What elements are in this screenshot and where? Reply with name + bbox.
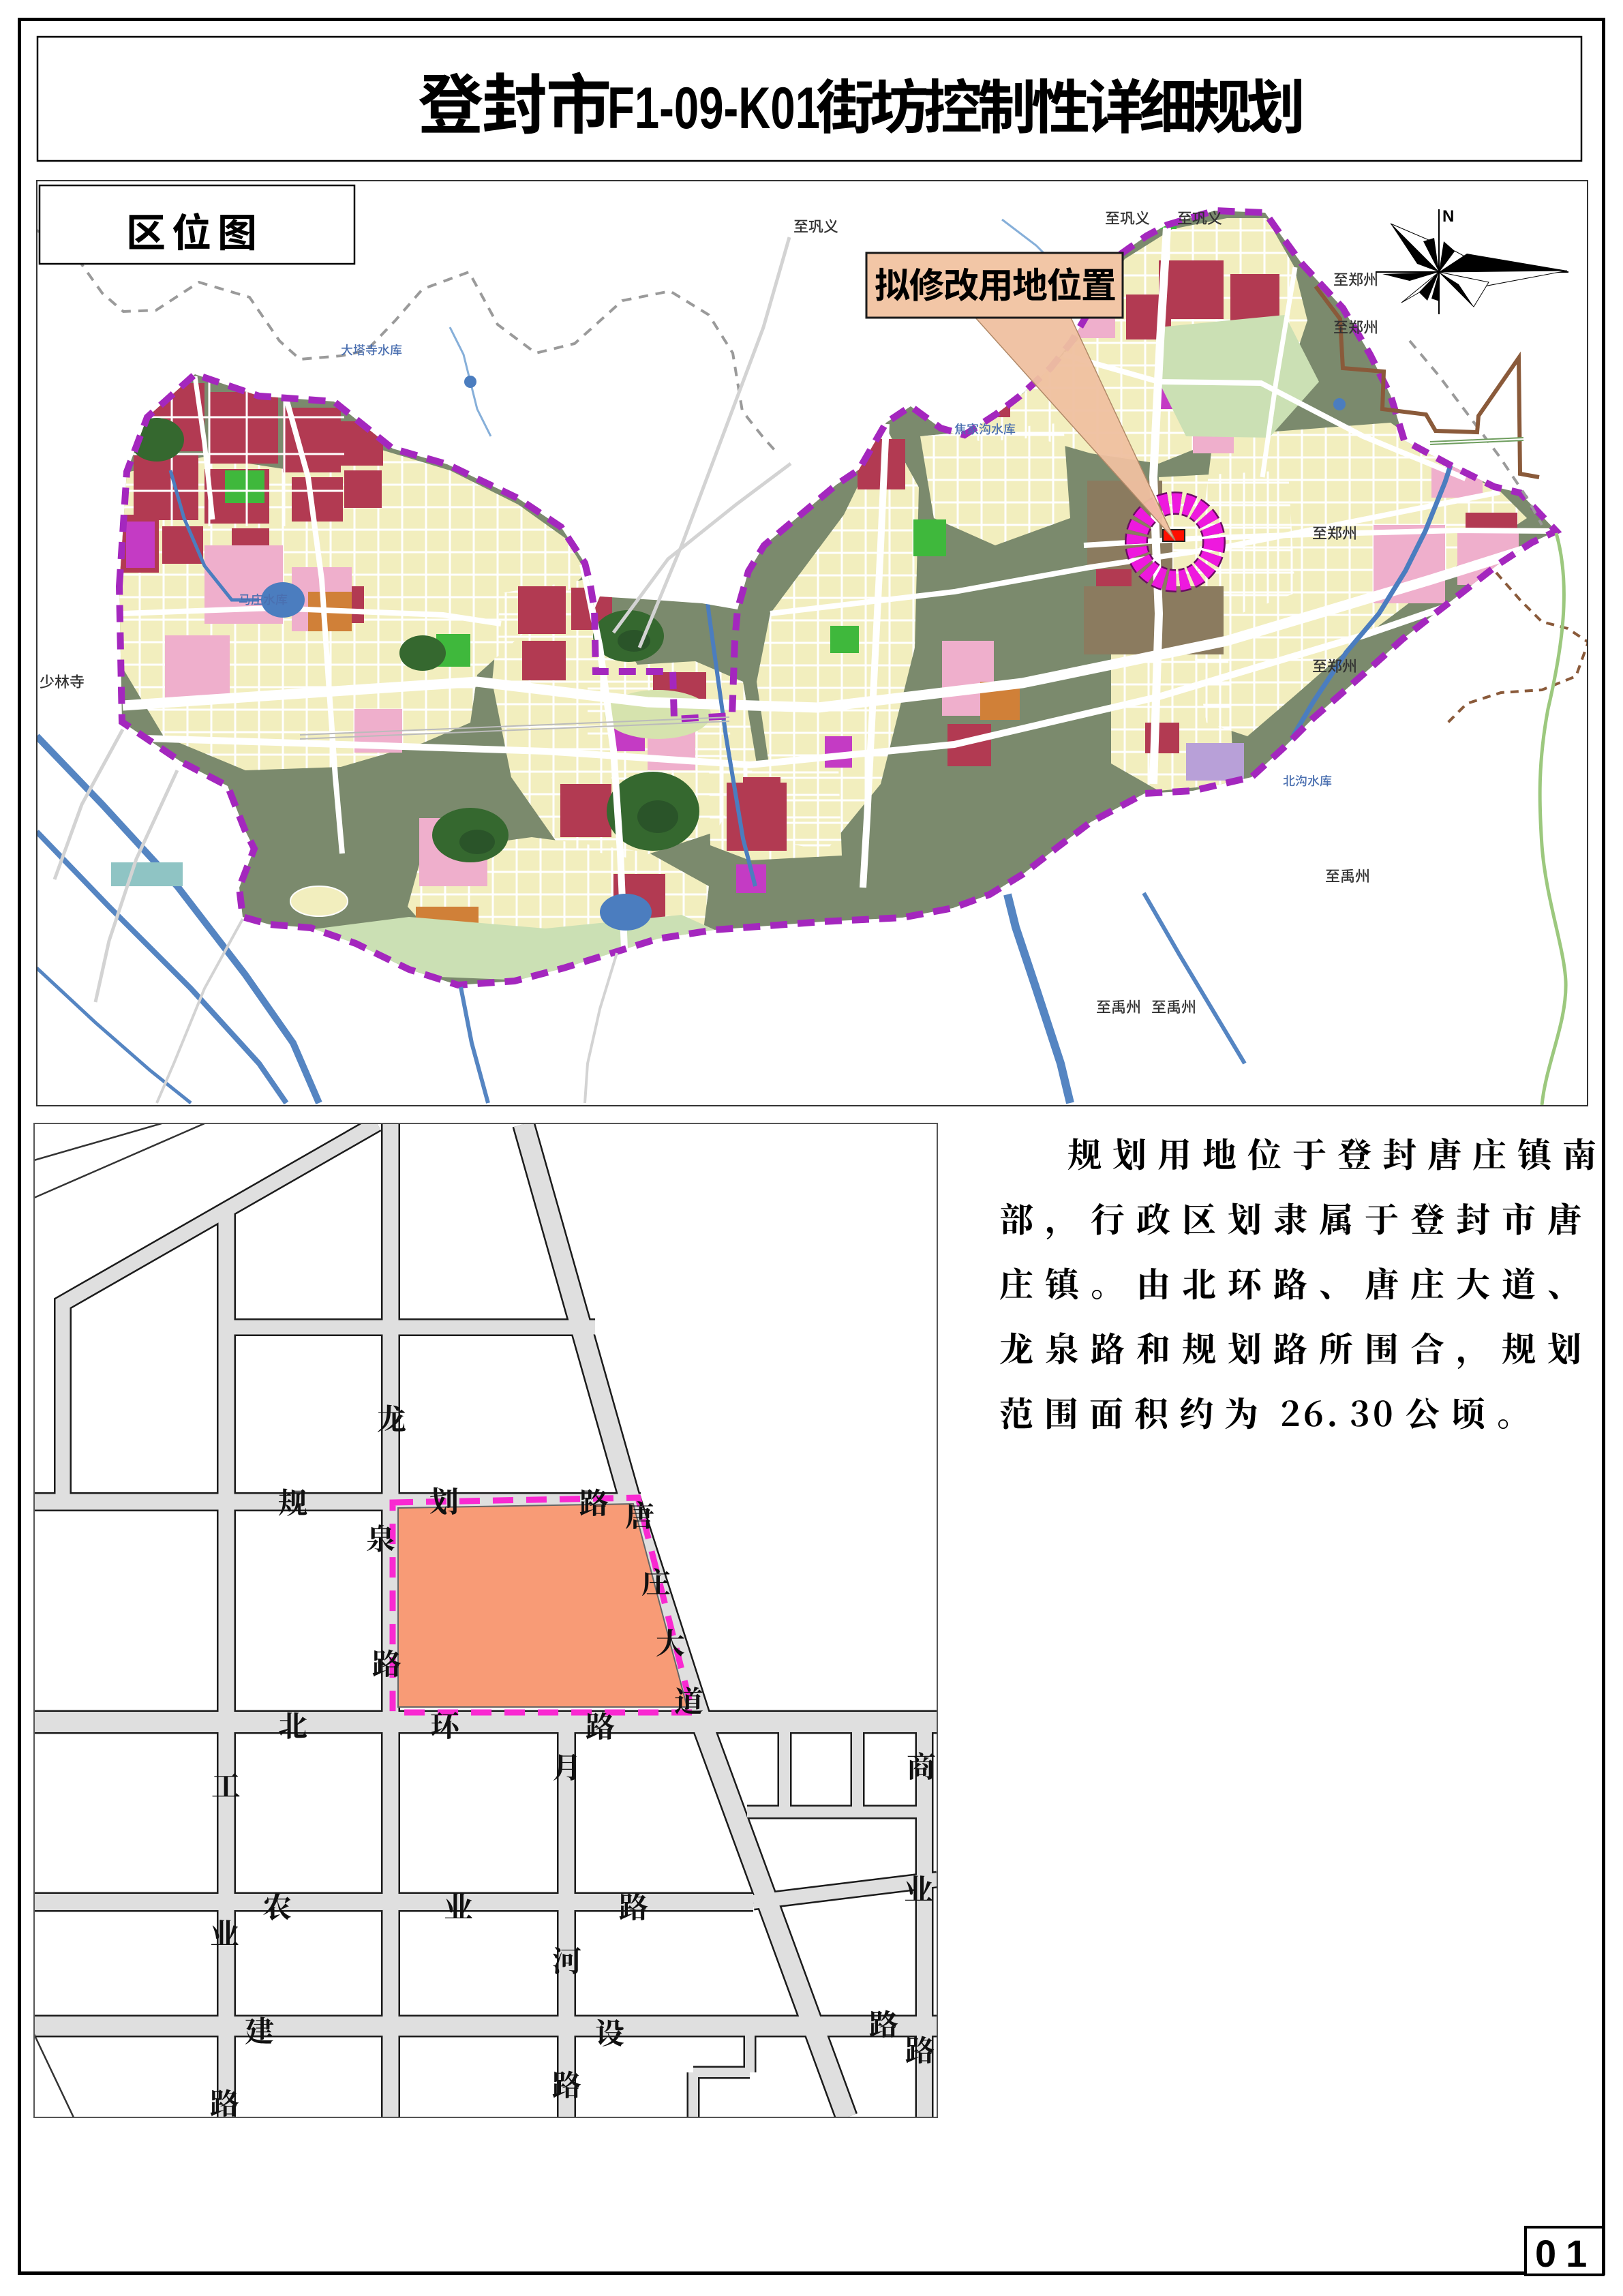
svg-text:F1-09-K01: F1-09-K01 (607, 76, 820, 141)
svg-text:01: 01 (1535, 2232, 1596, 2275)
svg-text:N: N (1442, 207, 1454, 226)
